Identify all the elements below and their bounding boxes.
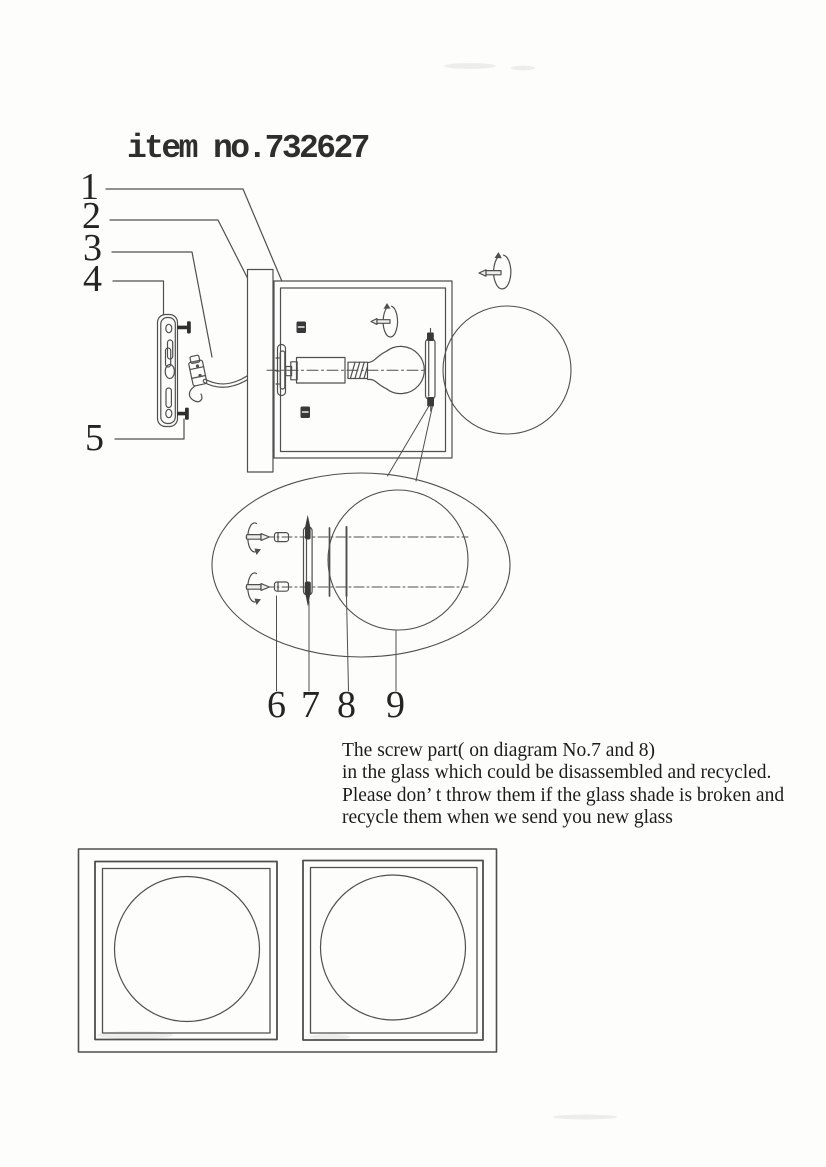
glass-shade [443, 306, 571, 434]
instruction-sheet: item no.732627 1 2 3 4 5 6 7 8 9 The scr… [0, 0, 826, 1167]
recycle-note-line-1: The screw part( on diagram No.7 and 8) [342, 740, 802, 762]
callout-8: 8 [337, 686, 356, 724]
detail-screw-rotation-icon-2 [247, 573, 270, 605]
front-view-right-shade [303, 861, 483, 1041]
wall-plate [158, 315, 191, 427]
power-cord [205, 374, 253, 386]
recycle-note-line-3: Please don’ t throw them if the glass sh… [342, 785, 802, 807]
callout-7: 7 [301, 686, 320, 724]
mounting-bracket [248, 270, 274, 473]
detail-screw-rail [304, 515, 313, 607]
exploded-diagram-svg [0, 0, 826, 1167]
callout-9: 9 [386, 686, 405, 724]
detail-screw-rotation-icon-1 [247, 523, 270, 555]
recycle-note-line-4: recycle them when we send you new glass [342, 807, 802, 829]
leader-lines-bottom [277, 596, 397, 691]
front-view [79, 849, 497, 1052]
screw-rotation-icon-top [479, 252, 511, 289]
clip-bottom-icon [301, 407, 311, 419]
callout-4: 4 [83, 260, 102, 298]
scan-smudges [97, 63, 617, 1120]
recycle-note: The screw part( on diagram No.7 and 8) i… [342, 740, 802, 830]
recycle-note-line-2: in the glass which could be disassembled… [342, 762, 802, 784]
item-number-title: item no.732627 [127, 130, 368, 167]
clip-top-icon [297, 322, 307, 334]
callout-6: 6 [267, 686, 286, 724]
front-view-frame [79, 849, 497, 1052]
lamp-body [267, 281, 452, 458]
mounting-screw-icon [177, 321, 191, 420]
detail-callout [212, 473, 510, 657]
callout-5: 5 [85, 419, 104, 457]
terminal-block [187, 354, 207, 401]
front-view-left-shade [95, 862, 277, 1040]
detail-glass-shade [328, 490, 468, 630]
